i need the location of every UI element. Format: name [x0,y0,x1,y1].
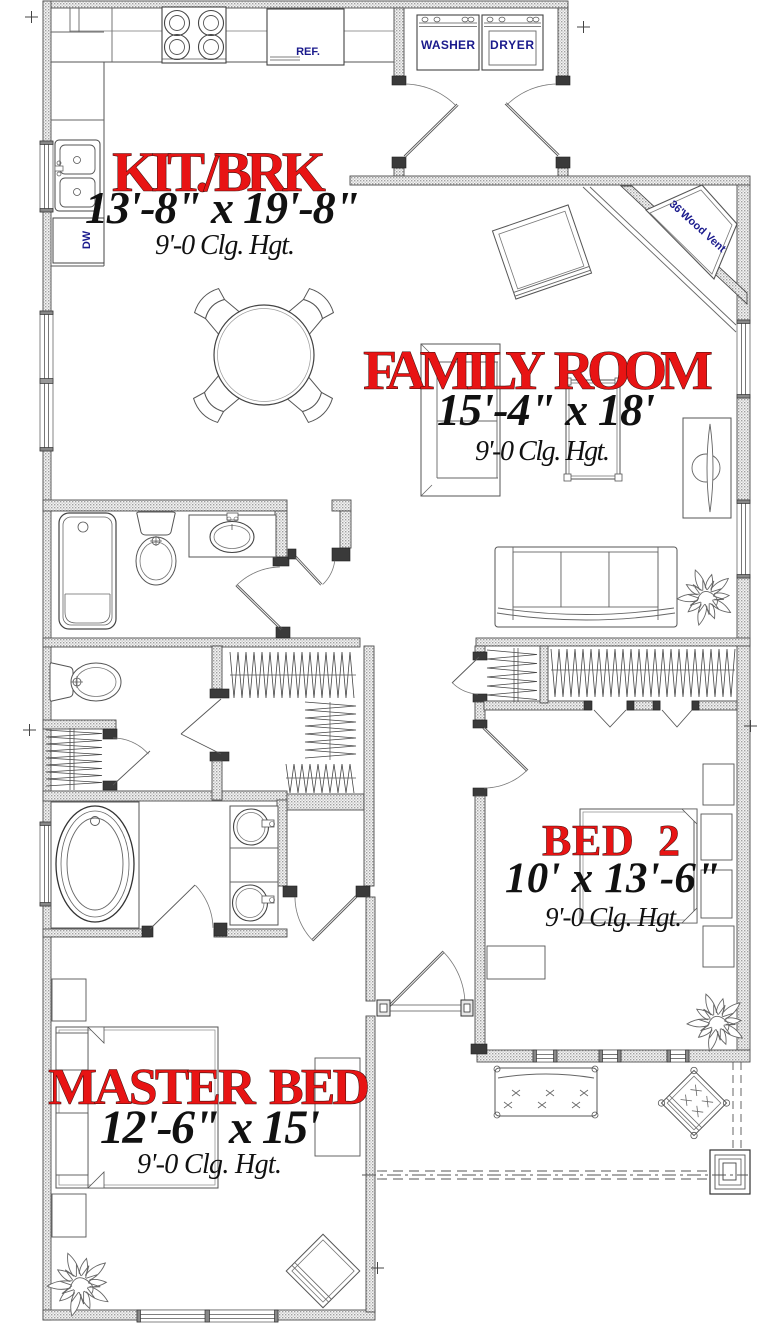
svg-text:9'-0 Clg. Hgt.: 9'-0 Clg. Hgt. [545,902,682,932]
svg-text:15'-4" x 18': 15'-4" x 18' [437,384,655,435]
svg-text:13'-8" x 19'-8": 13'-8" x 19'-8" [85,182,360,233]
svg-text:DW: DW [81,230,93,249]
svg-text:DRYER: DRYER [490,38,534,52]
svg-text:REF.: REF. [296,46,320,58]
svg-text:10' x 13'-6": 10' x 13'-6" [505,855,720,902]
svg-text:9'-0 Clg. Hgt.: 9'-0 Clg. Hgt. [137,1149,282,1180]
svg-text:12'-6" x 15': 12'-6" x 15' [100,1101,320,1154]
svg-text:9'-0 Clg. Hgt.: 9'-0 Clg. Hgt. [475,436,610,467]
svg-text:9'-0 Clg. Hgt.: 9'-0 Clg. Hgt. [155,230,295,261]
svg-text:WASHER: WASHER [421,38,475,52]
